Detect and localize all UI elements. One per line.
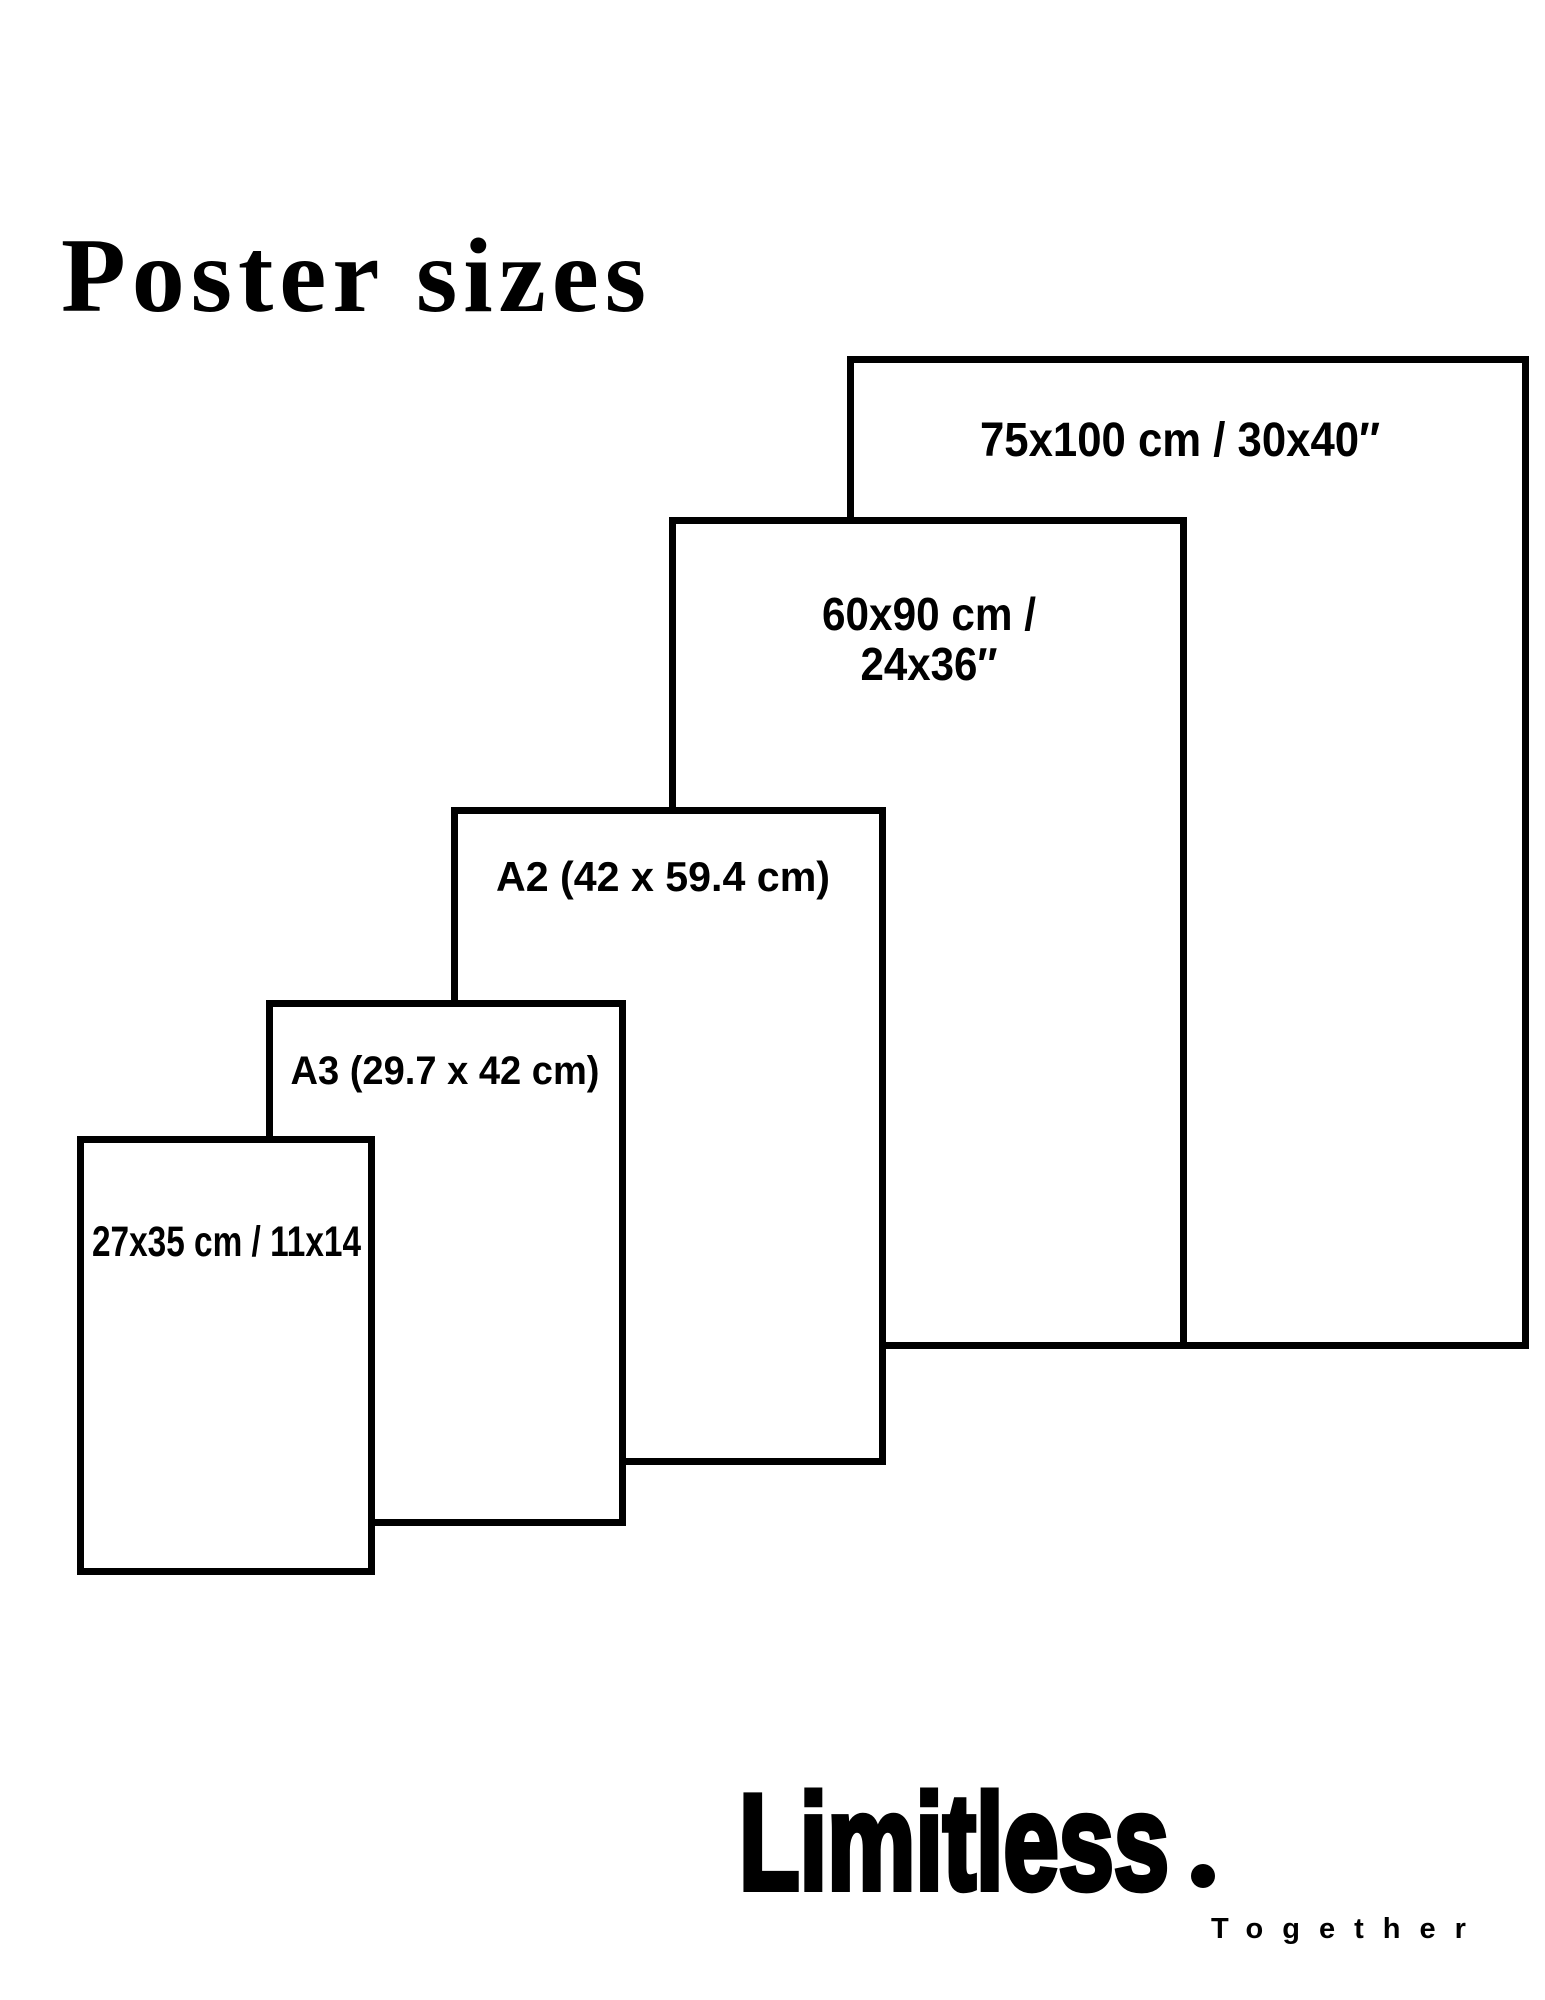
svg-text:24x36″: 24x36″	[861, 638, 998, 690]
svg-text:27x35 cm / 11x14: 27x35 cm / 11x14	[92, 1218, 361, 1266]
svg-text:Limitless: Limitless	[739, 1766, 1169, 1918]
svg-text:60x90 cm /: 60x90 cm /	[822, 588, 1036, 640]
svg-text:A2 (42 x 59.4 cm): A2 (42 x 59.4 cm)	[496, 853, 830, 900]
svg-text:75x100 cm / 30x40″: 75x100 cm / 30x40″	[980, 414, 1380, 467]
svg-text:A3 (29.7 x 42 cm): A3 (29.7 x 42 cm)	[291, 1049, 600, 1093]
